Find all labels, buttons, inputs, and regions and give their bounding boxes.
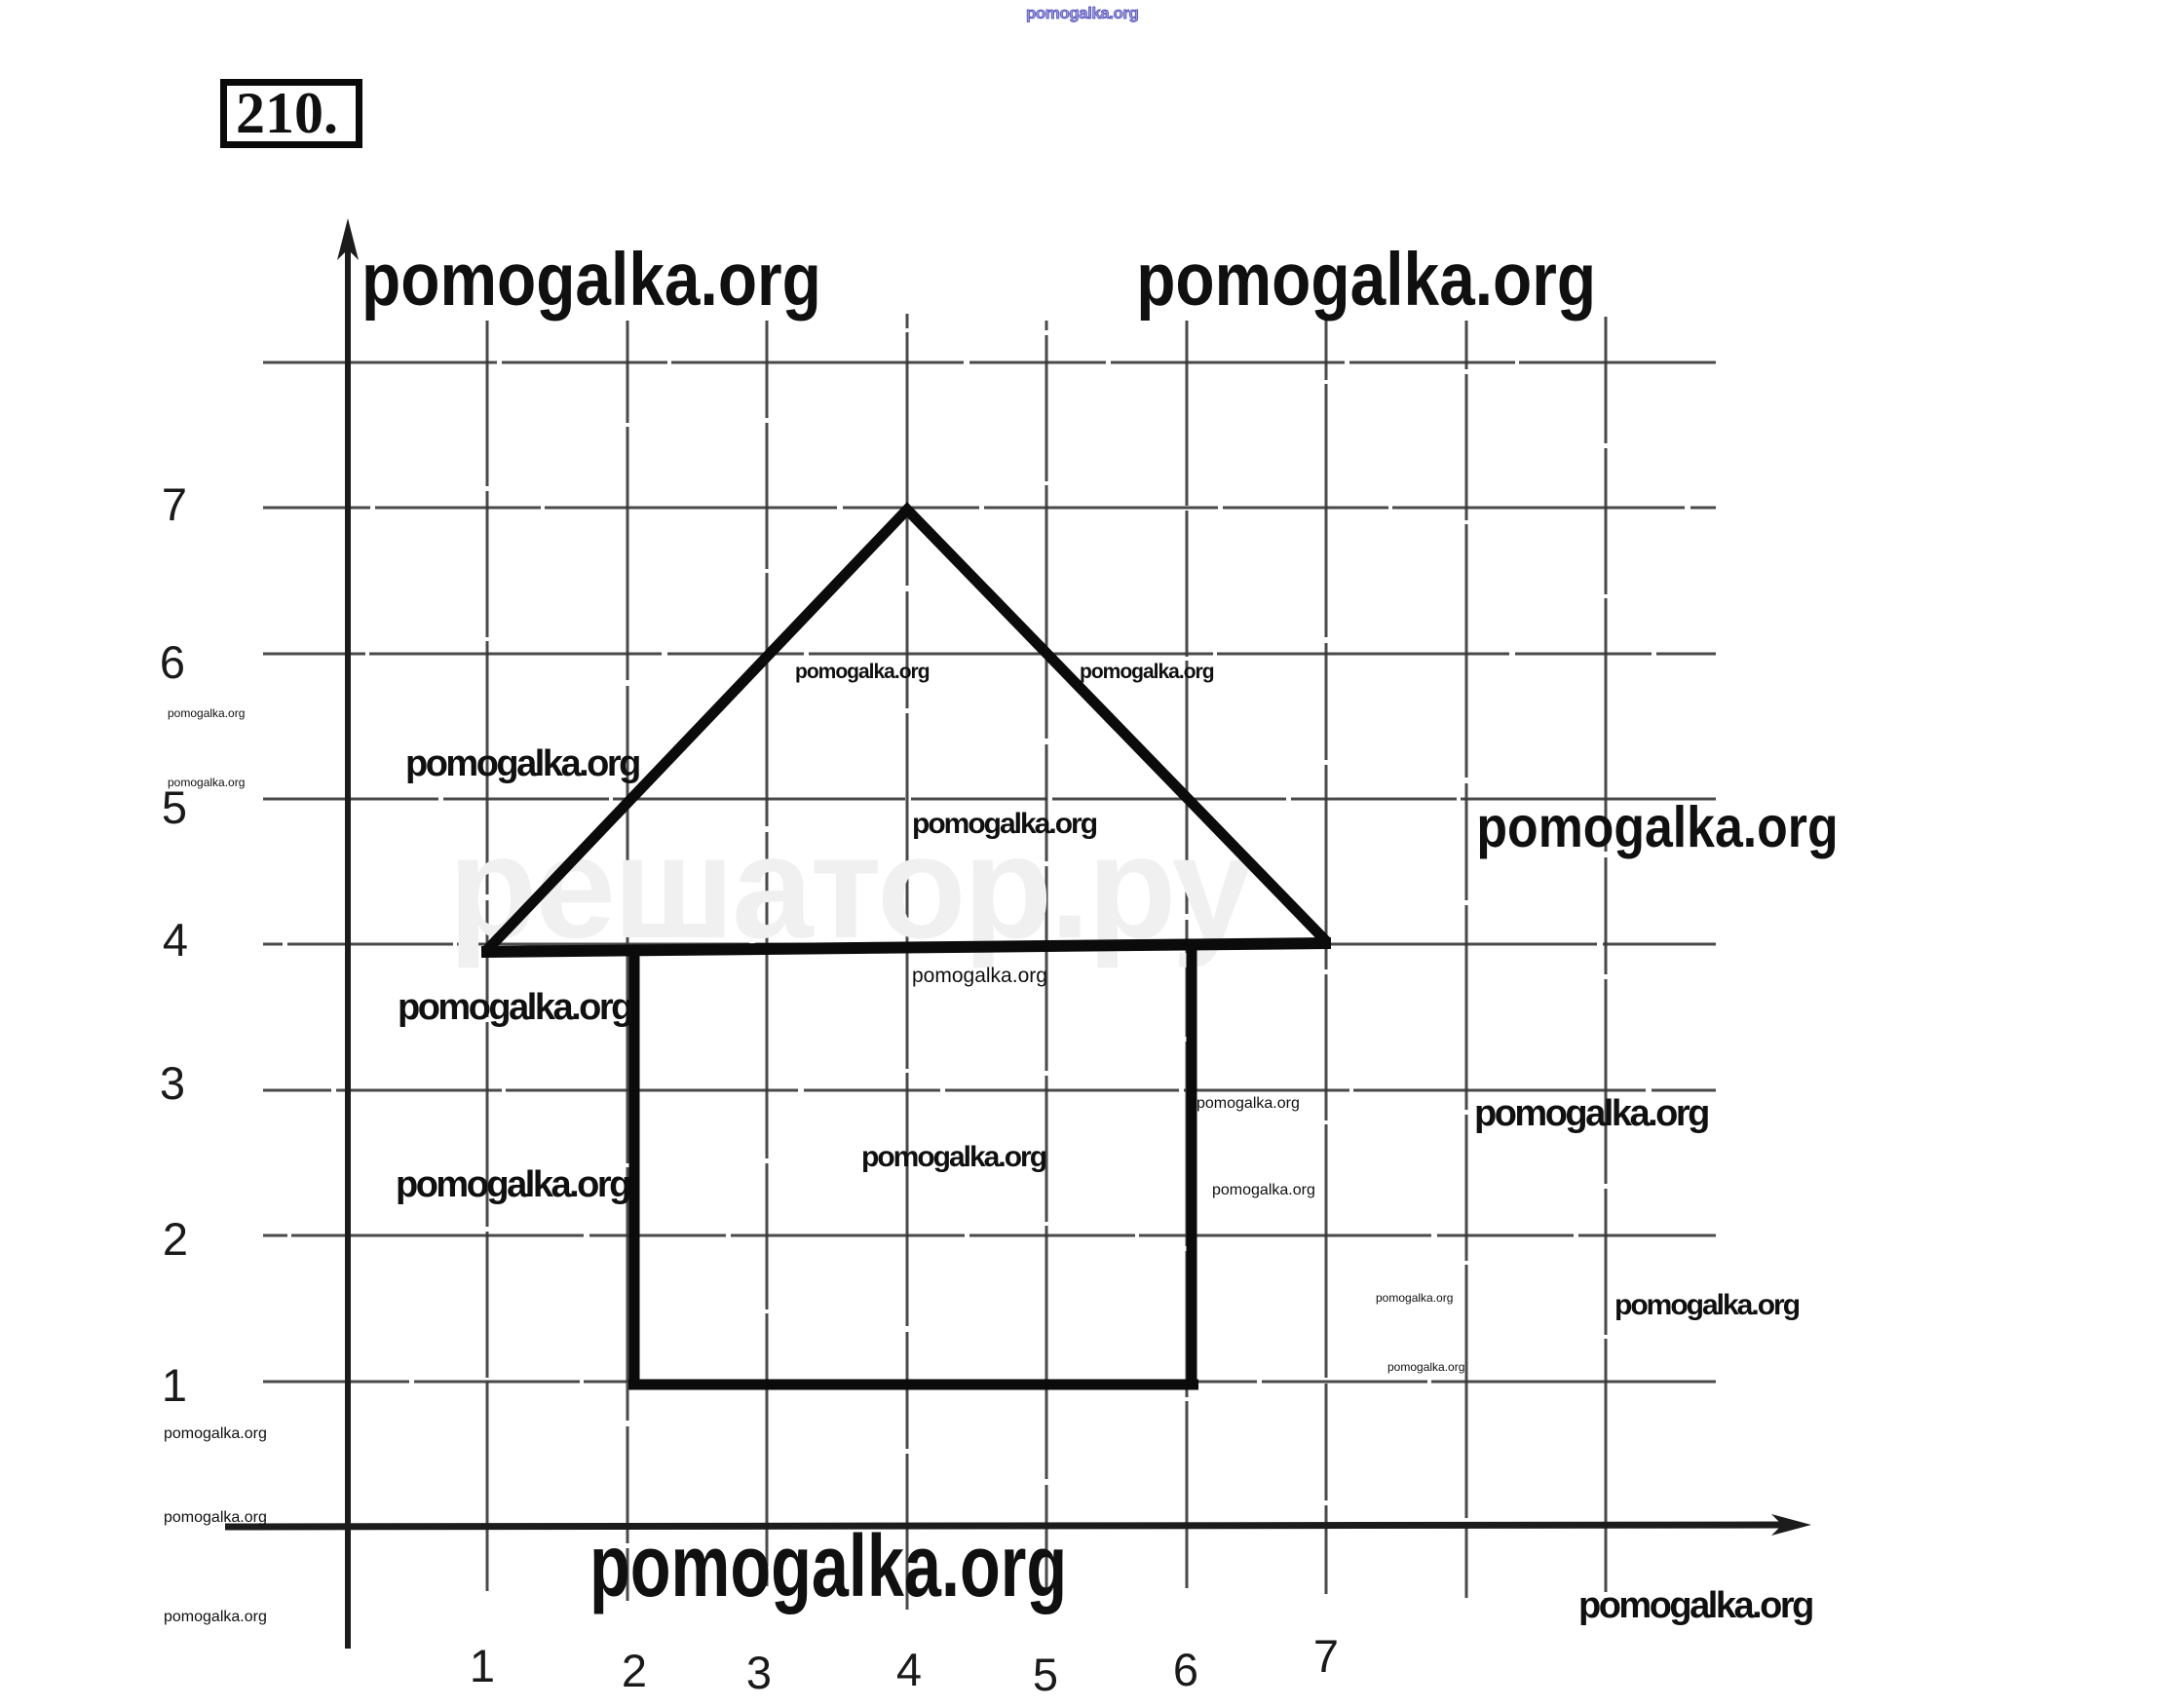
svg-text:3: 3	[160, 1057, 185, 1109]
svg-text:pomogalka.org: pomogalka.org	[795, 661, 930, 683]
svg-text:1: 1	[470, 1640, 495, 1691]
svg-text:pomogalka.org: pomogalka.org	[589, 1517, 1067, 1614]
svg-text:1: 1	[162, 1359, 187, 1411]
svg-text:pomogalka.org: pomogalka.org	[168, 706, 245, 720]
svg-text:4: 4	[896, 1644, 922, 1695]
svg-text:pomogalka.org: pomogalka.org	[405, 743, 639, 784]
svg-text:3: 3	[746, 1647, 772, 1698]
svg-text:pomogalka.org: pomogalka.org	[168, 776, 245, 789]
svg-text:pomogalka.org: pomogalka.org	[1026, 4, 1138, 22]
svg-text:pomogalka.org: pomogalka.org	[1376, 1291, 1453, 1305]
svg-text:pomogalka.org: pomogalka.org	[1387, 1360, 1464, 1374]
svg-text:pomogalka.org: pomogalka.org	[1476, 795, 1838, 859]
svg-text:2: 2	[622, 1645, 647, 1696]
svg-text:pomogalka.org: pomogalka.org	[1136, 238, 1596, 322]
svg-text:pomogalka.org: pomogalka.org	[164, 1425, 267, 1442]
svg-text:pomogalka.org: pomogalka.org	[912, 965, 1047, 987]
svg-text:pomogalka.org: pomogalka.org	[1578, 1585, 1812, 1626]
svg-text:pomogalka.org: pomogalka.org	[1614, 1289, 1800, 1321]
svg-text:6: 6	[160, 636, 185, 688]
svg-text:2: 2	[163, 1213, 188, 1265]
svg-text:pomogalka.org: pomogalka.org	[1212, 1182, 1315, 1198]
svg-text:pomogalka.org: pomogalka.org	[398, 987, 631, 1028]
svg-text:6: 6	[1173, 1644, 1198, 1695]
svg-text:pomogalka.org: pomogalka.org	[861, 1141, 1046, 1173]
svg-text:pomogalka.org: pomogalka.org	[396, 1164, 629, 1205]
svg-text:7: 7	[162, 478, 187, 530]
svg-text:pomogalka.org: pomogalka.org	[164, 1509, 267, 1526]
svg-text:pomogalka.org: pomogalka.org	[1196, 1095, 1300, 1112]
svg-text:pomogalka.org: pomogalka.org	[1474, 1093, 1708, 1134]
svg-text:pomogalka.org: pomogalka.org	[361, 238, 821, 322]
svg-text:pomogalka.org: pomogalka.org	[164, 1609, 267, 1625]
svg-text:4: 4	[163, 914, 188, 966]
svg-text:pomogalka.org: pomogalka.org	[912, 808, 1097, 840]
svg-text:210.: 210.	[236, 81, 338, 145]
svg-text:pomogalka.org: pomogalka.org	[1080, 661, 1214, 683]
svg-text:7: 7	[1313, 1630, 1339, 1682]
svg-text:5: 5	[1033, 1649, 1058, 1700]
